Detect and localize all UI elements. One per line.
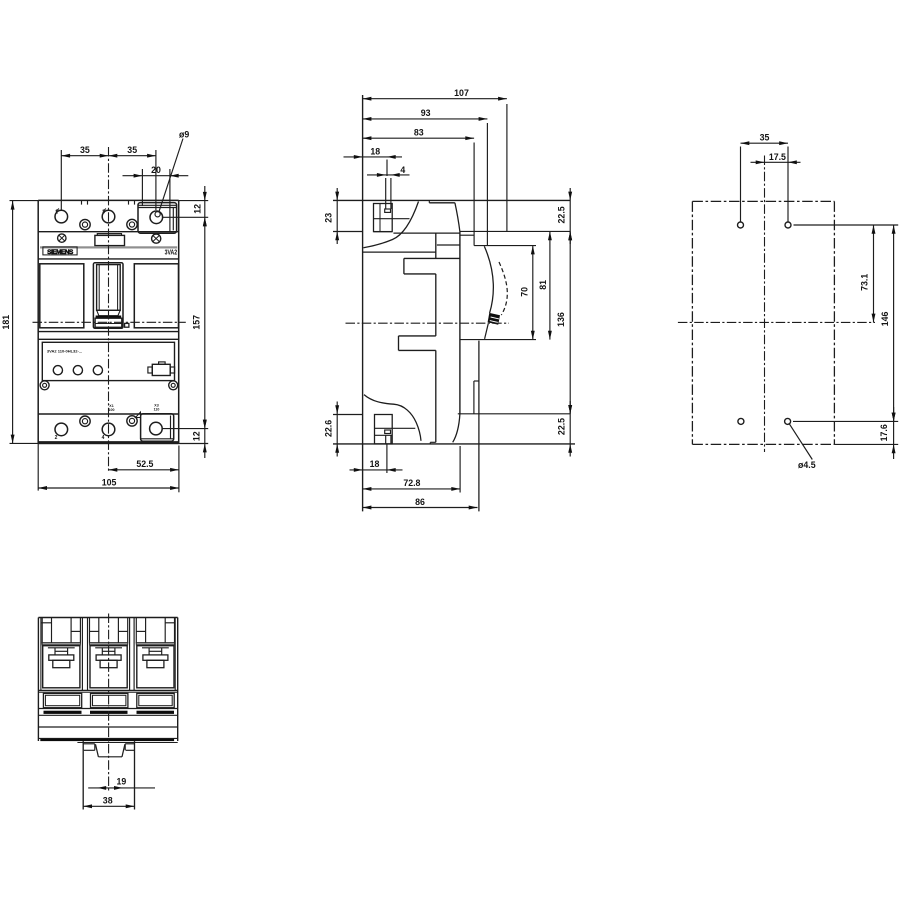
svg-text:146: 146 [880, 311, 890, 326]
svg-text:3VA2 110-0HL32-...: 3VA2 110-0HL32-... [47, 348, 82, 353]
svg-text:3VA2: 3VA2 [165, 247, 178, 256]
svg-text:136: 136 [556, 312, 566, 327]
svg-text:105: 105 [102, 477, 117, 487]
svg-text:107: 107 [454, 88, 469, 98]
svg-text:35: 35 [760, 133, 770, 143]
svg-text:18: 18 [370, 146, 380, 156]
svg-text:2: 2 [55, 435, 58, 441]
svg-text:SIEMENS: SIEMENS [47, 249, 74, 256]
svg-text:100: 100 [109, 408, 115, 412]
svg-text:35: 35 [80, 145, 90, 155]
svg-text:4: 4 [400, 165, 405, 175]
svg-text:72.8: 72.8 [403, 478, 420, 488]
svg-text:70: 70 [519, 287, 529, 297]
svg-text:81: 81 [538, 280, 548, 290]
svg-text:4: 4 [102, 435, 105, 441]
svg-text:22.6: 22.6 [324, 420, 334, 437]
svg-text:18: 18 [370, 459, 380, 469]
svg-text:35: 35 [127, 145, 137, 155]
svg-text:181: 181 [1, 315, 11, 330]
svg-text:17.5: 17.5 [769, 152, 786, 162]
svg-text:20: 20 [151, 165, 161, 175]
svg-text:83: 83 [414, 128, 424, 138]
svg-text:93: 93 [421, 108, 431, 118]
svg-text:19: 19 [117, 777, 127, 787]
svg-text:38: 38 [103, 795, 113, 805]
svg-text:ø4.5: ø4.5 [798, 460, 816, 470]
svg-text:73.1: 73.1 [859, 274, 869, 291]
svg-text:23: 23 [324, 213, 334, 223]
svg-text:17.6: 17.6 [879, 424, 889, 441]
svg-text:157: 157 [192, 315, 202, 330]
svg-text:12: 12 [192, 204, 202, 214]
svg-text:110: 110 [154, 407, 160, 411]
svg-text:22.5: 22.5 [556, 418, 566, 435]
svg-text:22.5: 22.5 [556, 206, 566, 223]
svg-text:ø9: ø9 [179, 129, 189, 139]
svg-text:12: 12 [192, 431, 202, 441]
svg-text:86: 86 [415, 497, 425, 507]
svg-text:52.5: 52.5 [136, 459, 153, 469]
